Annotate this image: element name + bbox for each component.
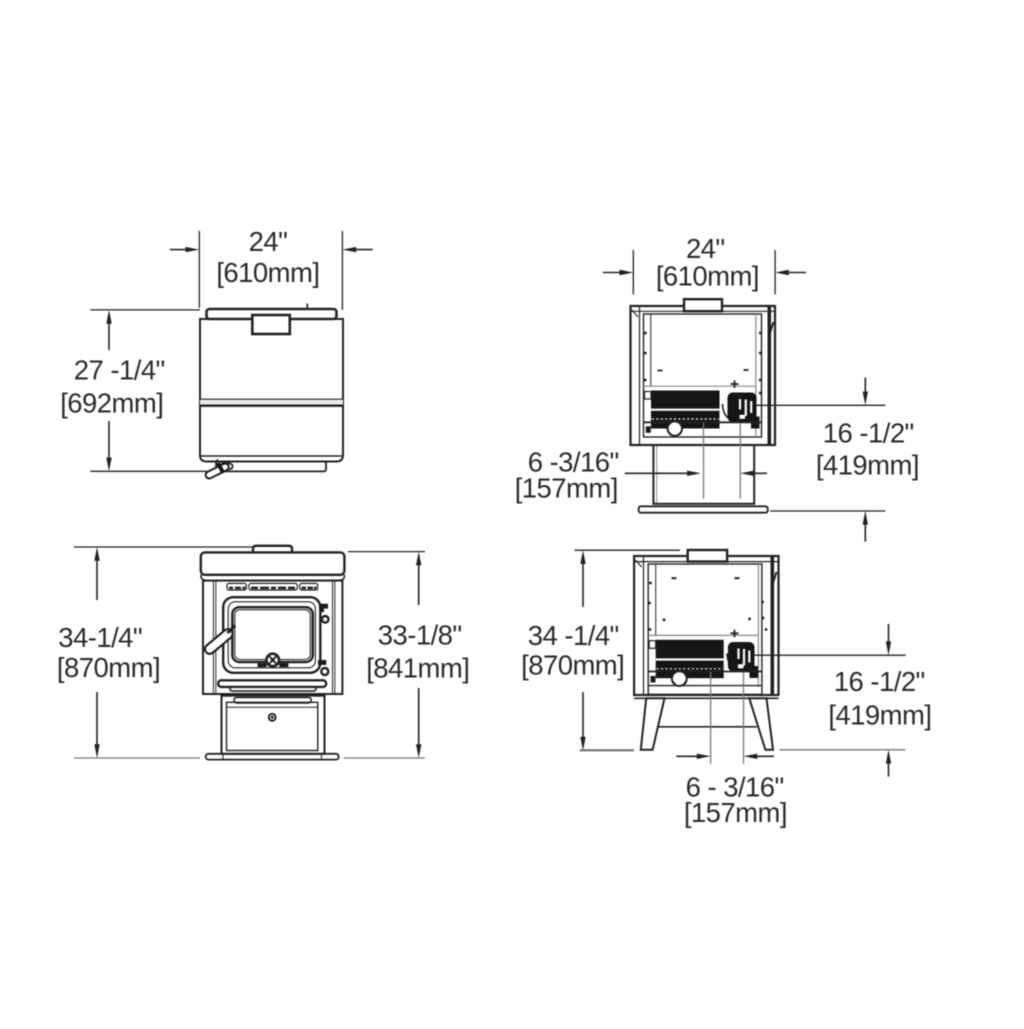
- svg-text:16 -1/2": 16 -1/2": [823, 418, 914, 449]
- svg-text:[841mm]: [841mm]: [366, 652, 469, 683]
- svg-text:[870mm]: [870mm]: [521, 649, 624, 680]
- svg-text:27 -1/4": 27 -1/4": [74, 354, 165, 385]
- svg-text:[610mm]: [610mm]: [656, 261, 759, 292]
- svg-text:24": 24": [686, 233, 725, 264]
- svg-text:16 -1/2": 16 -1/2": [834, 666, 925, 697]
- svg-text:[419mm]: [419mm]: [816, 450, 919, 481]
- svg-text:24": 24": [249, 226, 288, 257]
- svg-text:[157mm]: [157mm]: [684, 797, 787, 828]
- svg-text:[610mm]: [610mm]: [216, 257, 319, 288]
- svg-text:33-1/8": 33-1/8": [378, 620, 462, 651]
- svg-text:[870mm]: [870mm]: [57, 652, 160, 683]
- svg-text:[419mm]: [419mm]: [828, 699, 931, 730]
- svg-text:[157mm]: [157mm]: [515, 472, 618, 503]
- svg-text:34 -1/4": 34 -1/4": [528, 620, 619, 651]
- svg-text:[692mm]: [692mm]: [60, 388, 163, 419]
- svg-text:34-1/4": 34-1/4": [58, 622, 142, 653]
